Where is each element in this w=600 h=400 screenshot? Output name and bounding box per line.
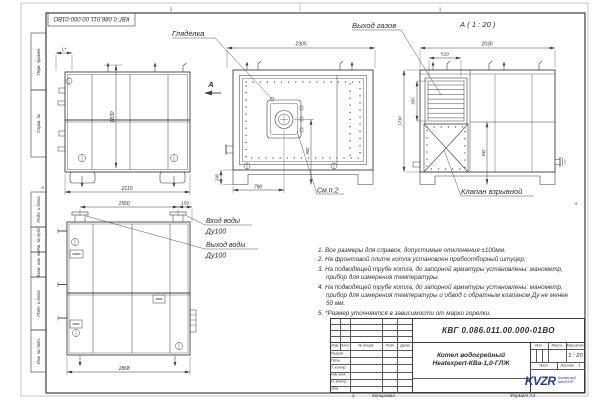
row-label-razrab: Разраб. [331, 352, 344, 356]
mass-label: Масса [552, 344, 563, 348]
view-front: 2305 Гляделка А [172, 29, 375, 195]
fold-mark-left: А [40, 185, 44, 190]
titleblock-doc-number: КВГ 0.086.011.00.000-01ВО [413, 319, 584, 341]
fold-mark-right: А [574, 201, 578, 206]
note-5: 5. *Размер уточняется в зависимости от м… [318, 310, 571, 318]
margin-col-0: Перв. примен. [36, 48, 41, 76]
dim-1550: 1550 [118, 201, 129, 207]
water-outlet-dn: Ду100 [205, 253, 226, 260]
notes-block: 1. Все размеры для справок, допустимые о… [318, 247, 571, 319]
margin-col-2: Подп. и дата [36, 196, 41, 223]
view-a-title: А ( 1 : 20 ) [459, 20, 496, 29]
margin-col-5: Подп. и дата [36, 290, 41, 317]
margin-col-3: Инв. № дубл. [36, 227, 41, 253]
note-3: 3. На подводящей трубе котла, до запорно… [318, 266, 571, 283]
view-side-left: L* 1830 2110 [56, 47, 190, 196]
explosion-valve-label: Клапан взрывной [461, 187, 523, 196]
dim-950: 950 [305, 147, 310, 155]
row-label-utv: Утв. [331, 387, 339, 391]
dim-2110: 2110 [121, 186, 133, 192]
sheets-value: 1 [579, 364, 581, 368]
sheets-label: Листов [560, 364, 573, 368]
dim-510: 510 [441, 52, 449, 57]
dim-600: 600 [411, 97, 416, 105]
row-label-nachotd: Нач.отд. [331, 373, 346, 377]
note-1: 1. Все размеры для справок, допустимые о… [318, 247, 571, 255]
dim-790: 790 [254, 185, 263, 191]
view-direction-label: А [207, 80, 213, 89]
col-header-podp: Подп. [385, 344, 395, 348]
dim-2030: 2030 [480, 42, 492, 48]
title-block: КВГ 0.086.011.00.000-01ВО Котел водогрей… [330, 318, 585, 393]
lit-label: Лит. [535, 344, 543, 348]
copy-num: 1 [352, 393, 355, 398]
company-line2: завод КЗР [558, 381, 576, 385]
sheet-label: Лист [539, 364, 548, 368]
margin-col-1: Справ. № [36, 114, 41, 133]
copy-label: Копировал [372, 393, 395, 398]
col-header-izm: Изм. [331, 344, 339, 348]
kvzr-logo: KVZR [525, 374, 556, 388]
margin-col-4: Взам. инв. № [36, 251, 41, 277]
row-label-nkontr: Н. контр. [331, 380, 347, 384]
product-name-line2: Heatexpert-КВа-1,0-ГЛЖ [433, 360, 510, 368]
gas-outlet-label: Выход газов [352, 21, 396, 30]
margin-col-6: Инв. № подл. [36, 338, 41, 364]
scale-label: Масштаб [567, 344, 584, 348]
company-logo-cell: KVZR Котельный завод КЗР [531, 369, 584, 392]
margin-stamps: Перв. примен. Справ. № Подп. и дата Инв.… [31, 33, 46, 372]
view-side-bottom: 1550 159 [58, 201, 258, 376]
dim-1730: 1730 [398, 116, 403, 126]
water-inlet-dn: Ду100 [205, 229, 226, 236]
col-header-list: Лист [340, 344, 349, 348]
dim-l-star: L* [62, 47, 67, 52]
note-2: 2. На фронтовой плите котла установлен п… [318, 256, 571, 264]
dim-2305: 2305 [294, 42, 306, 48]
dim-159: 159 [181, 201, 189, 206]
scale-value: 1 : 20 [566, 349, 585, 362]
water-inlet-label: Вход воды [206, 217, 241, 225]
water-outlet-label: Выход воды [206, 241, 246, 249]
doc-number-rotated: КВГ 0.086.011.00.000-01ВО [53, 15, 129, 21]
product-name: Котел водогрейный Heatexpert-КВа-1,0-ГЛЖ [413, 343, 529, 377]
row-label-tkontr: Т. контр. [331, 366, 347, 370]
note-4: 4. На подводящей трубе котла, до запорно… [318, 284, 571, 309]
product-name-line1: Котел водогрейный [433, 352, 510, 360]
boiler-engineering-drawing: { "sheet": { "doc_number": "КВГ 0.086.01… [0, 0, 600, 400]
dim-940: 940 [481, 149, 486, 157]
view-a: А ( 1 : 20 ) Выход газов 2030 510 [352, 20, 565, 196]
dim-1830: 1830 [110, 111, 116, 122]
col-header-docnum: № докум. [358, 344, 374, 348]
zone-label-1: 1 [439, 7, 442, 12]
dim-290: 290 [215, 173, 220, 182]
company-name: Котельный завод КЗР [558, 377, 576, 384]
zone-label-2: 2 [170, 7, 173, 12]
row-label-prov: Пров. [331, 359, 340, 363]
sight-glass-label: Гляделка [172, 29, 204, 38]
col-header-data: Дата [400, 344, 410, 348]
format-label: Формат А3 [510, 393, 536, 398]
dim-1868: 1868 [118, 366, 129, 372]
bottom-strip: 1 Копировал Формат А3 [352, 393, 536, 398]
see-note-label: См.п.2 [317, 188, 339, 195]
